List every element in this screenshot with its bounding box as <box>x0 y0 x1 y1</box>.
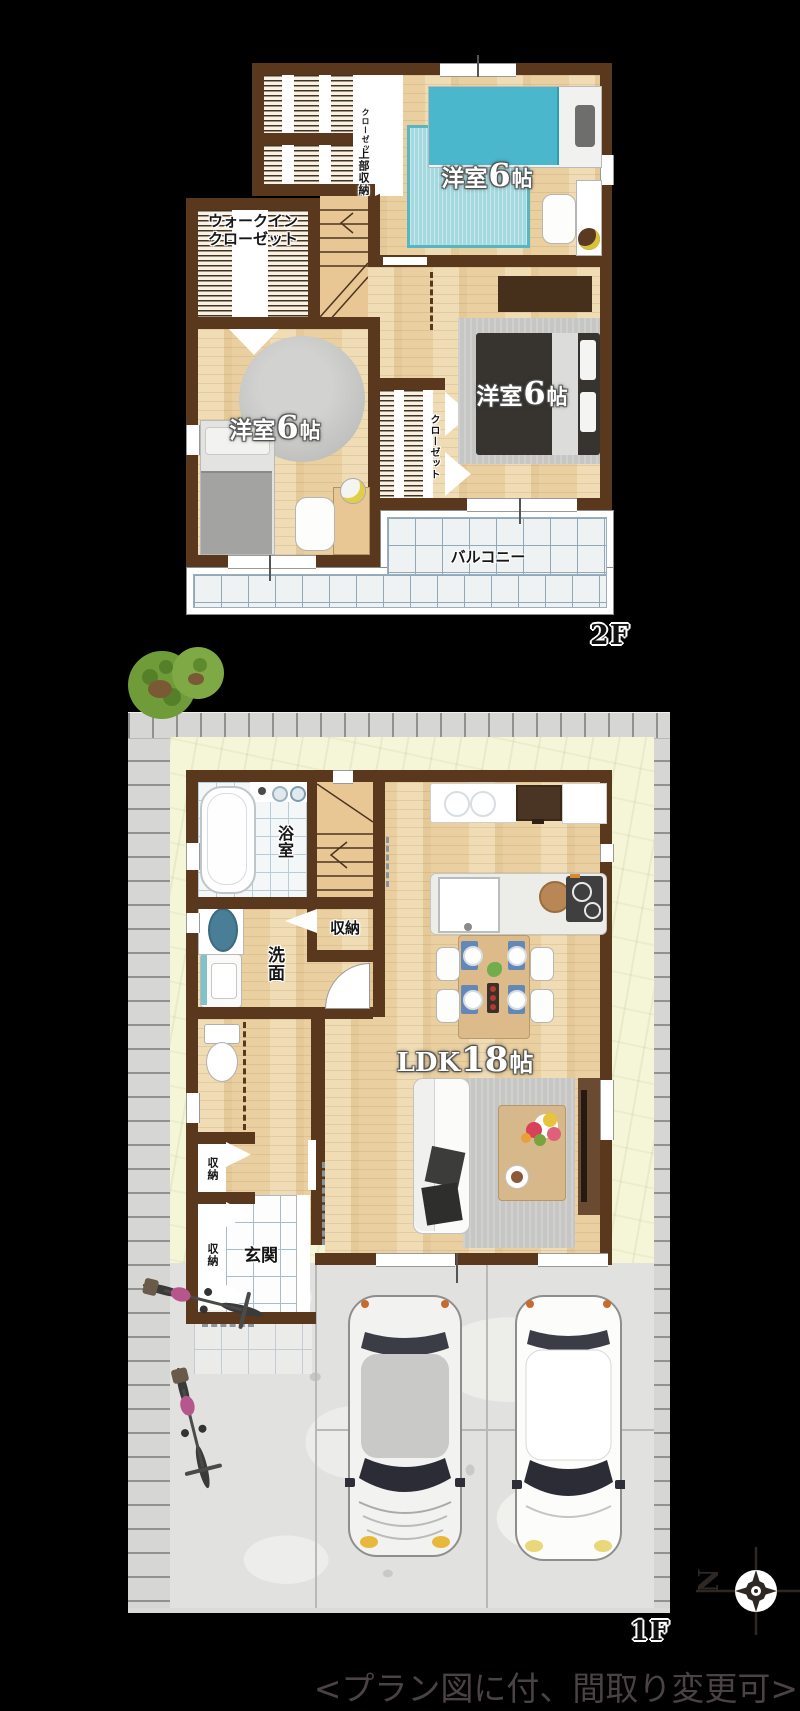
chair <box>295 497 335 551</box>
dashed-line <box>322 1162 325 1245</box>
window <box>467 498 577 512</box>
window <box>333 770 353 784</box>
floor-plan-image: クローゼット 上部収納 ウォークイン クローゼット クローゼット 洋室6帖 洋室… <box>0 0 800 1711</box>
window <box>186 843 200 870</box>
room-unit: 帖 <box>300 415 321 445</box>
bed-blanket <box>201 471 272 554</box>
sofa-cushion <box>421 1182 463 1225</box>
balcony-tiles <box>193 574 607 608</box>
room-size: 18 <box>460 1040 509 1080</box>
site-edge <box>128 1608 670 1613</box>
wall <box>186 897 385 909</box>
washing-machine-strip <box>201 955 207 1005</box>
toilet-tank <box>204 1024 240 1044</box>
window <box>376 1253 455 1267</box>
plate-icon <box>463 990 483 1010</box>
paver-strip <box>654 712 670 1613</box>
closet-gap <box>394 390 404 498</box>
faucet-icon <box>464 923 472 931</box>
basin-icon <box>272 786 288 802</box>
condiment-dot <box>490 986 496 992</box>
toilet-bowl <box>206 1042 238 1082</box>
tv-stand <box>532 819 544 824</box>
room-name: LDK <box>397 1048 460 1078</box>
wall <box>252 63 264 196</box>
floor-label-1f: 1F <box>630 1616 670 1647</box>
cup-icon <box>505 1165 529 1189</box>
toilet <box>204 1024 238 1082</box>
bathtub-inner <box>207 793 247 885</box>
condiment-dot <box>490 1004 496 1010</box>
room-size: 6 <box>487 156 511 194</box>
wall <box>264 133 353 145</box>
wall <box>373 770 385 1017</box>
label-bedroom-top: 洋室6帖 <box>407 156 567 194</box>
stairs-lines <box>317 782 373 897</box>
wall <box>368 378 445 390</box>
dish-icon <box>470 791 496 817</box>
window <box>600 844 614 862</box>
burner-icon <box>584 902 601 919</box>
washing-machine <box>200 954 242 1008</box>
wall <box>186 1192 255 1204</box>
label-ldk: LDK18帖 <box>385 1040 545 1080</box>
faucet-icon <box>258 787 266 795</box>
stairs-1f <box>317 782 373 897</box>
storage-door-strip <box>219 1144 226 1192</box>
closet-gap <box>319 75 331 133</box>
bathtub <box>200 786 256 894</box>
door-track <box>308 1140 316 1190</box>
closet-gap <box>282 145 294 184</box>
wall <box>307 950 385 962</box>
chair <box>436 989 460 1023</box>
window-tick <box>519 498 521 524</box>
footnote-text: <プラン図に付、間取り変更可> <box>290 1662 798 1710</box>
label-stair-storage: 収納 <box>317 919 373 941</box>
chair <box>436 947 460 981</box>
window <box>186 913 200 933</box>
kitchen-sink <box>438 877 500 933</box>
door-track <box>383 257 427 265</box>
wardrobe <box>498 276 592 312</box>
sliding-door-dashed <box>243 1022 246 1130</box>
room-name: 洋室 <box>441 159 487 193</box>
sliding-door-dashed <box>430 272 433 330</box>
label-bedroom-right: 洋室6帖 <box>442 374 602 412</box>
wall <box>186 198 320 210</box>
dashed-line <box>386 837 389 887</box>
car <box>345 1292 465 1560</box>
flowers-icon <box>512 1110 564 1158</box>
room-name: 洋室 <box>476 377 522 411</box>
knob-icon <box>570 874 580 878</box>
cup-coffee <box>511 1171 523 1183</box>
stairs-2f <box>320 196 368 333</box>
plate-icon <box>463 946 483 966</box>
compass-north-letter: N <box>694 1568 725 1593</box>
condiment-dot <box>490 995 496 1001</box>
label-hall-storage: 収納 <box>196 1146 219 1192</box>
chair <box>530 947 554 981</box>
label-entry-storage: 収納 <box>196 1232 219 1278</box>
tree-icon <box>122 645 227 720</box>
driveway-joint <box>486 1263 488 1608</box>
bed-pillow <box>575 105 595 147</box>
stairs-lines <box>320 196 368 333</box>
dish-icon <box>444 791 470 817</box>
room-name: 洋室 <box>229 411 275 445</box>
room-unit: 帖 <box>547 381 568 411</box>
sofa-cushion <box>425 1146 466 1188</box>
window-tick <box>269 555 271 581</box>
label-bath: 浴室 <box>268 808 294 876</box>
tv <box>516 785 562 821</box>
floor-label-2f: 2F <box>590 620 630 651</box>
room-unit: 帖 <box>512 163 533 193</box>
closet-gap <box>319 145 331 184</box>
chair <box>530 989 554 1023</box>
bed-blanket <box>429 87 559 165</box>
label-entrance: 玄関 <box>226 1246 296 1272</box>
car <box>512 1292 625 1564</box>
tv-screen <box>581 1090 587 1202</box>
wash-basin <box>208 908 238 952</box>
entrance-step <box>296 1195 310 1312</box>
plate-icon <box>507 990 527 1010</box>
wall <box>252 63 612 75</box>
label-upper-storage: 上部収納 <box>352 146 370 198</box>
wall <box>186 770 612 782</box>
room-size: 6 <box>522 374 546 412</box>
sofa <box>413 1078 470 1234</box>
lamp-icon <box>578 228 600 250</box>
compass-icon: N <box>688 1545 800 1637</box>
window-tick <box>477 55 479 77</box>
label-balcony: バルコニー <box>428 548 548 572</box>
lamp-icon <box>340 478 366 504</box>
label-washroom: 洗面 <box>256 928 284 1000</box>
upper-storage-floor <box>264 145 353 184</box>
basin-icon <box>290 786 306 802</box>
window-tick <box>456 1253 458 1283</box>
wall <box>307 782 317 962</box>
window <box>600 1080 614 1140</box>
burner-icon <box>572 882 592 902</box>
closet-gap <box>282 75 294 133</box>
room-unit: 帖 <box>509 1043 533 1078</box>
closet-top-floor <box>264 75 353 133</box>
wall <box>186 317 380 329</box>
condiment-tray <box>487 983 499 1013</box>
stove <box>566 876 603 922</box>
window <box>228 555 316 569</box>
room-size: 6 <box>275 408 299 446</box>
label-wic-line2: クローゼット <box>196 230 310 248</box>
chair <box>542 194 576 244</box>
label-bedroom-left: 洋室6帖 <box>195 408 355 446</box>
window <box>538 1253 608 1267</box>
paver-strip <box>128 712 170 1613</box>
label-closet-mid: クローゼット <box>421 414 439 480</box>
kitchen-cabinet <box>562 783 607 824</box>
window <box>186 1093 200 1123</box>
plate-icon <box>507 946 527 966</box>
label-wic: ウォークイン クローゼット <box>196 212 310 258</box>
tv-board <box>578 1078 600 1215</box>
label-wic-line1: ウォークイン <box>196 212 310 230</box>
window <box>600 155 614 185</box>
wall <box>186 1132 255 1144</box>
washing-machine-door <box>211 963 237 999</box>
